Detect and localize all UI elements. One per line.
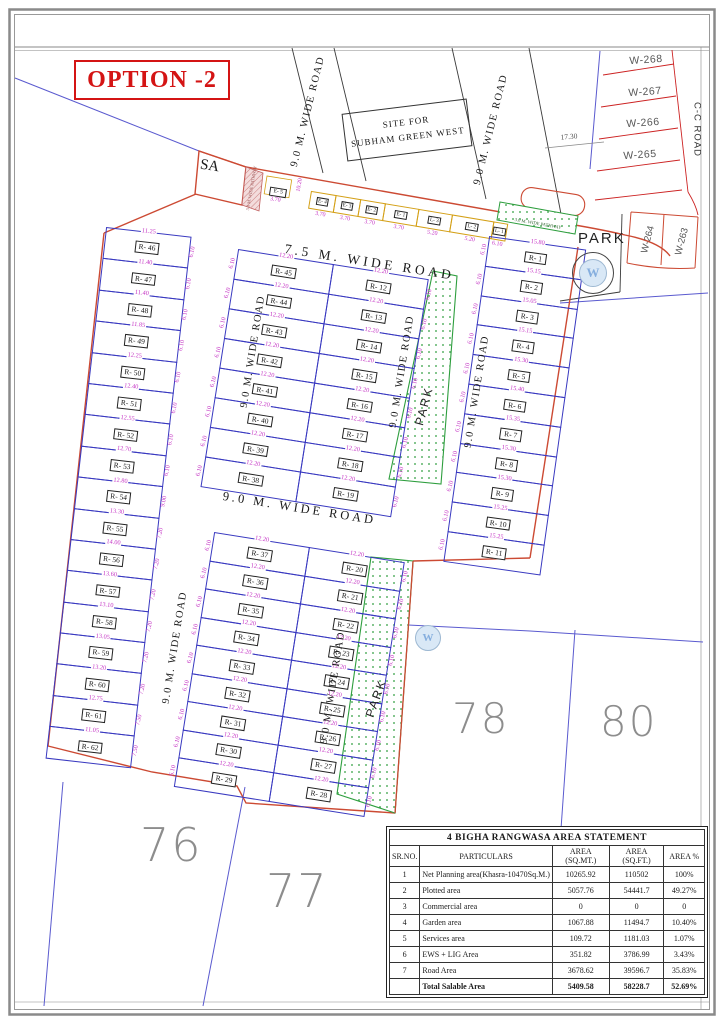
plot-width-dim: 11.05 (84, 727, 101, 735)
plot-label: R- 49 (123, 334, 149, 348)
khasra-77: 77 (266, 864, 329, 918)
plot-width-dim: 12.20 (254, 400, 271, 409)
cell-srno: 4 (390, 915, 420, 931)
plot-width-dim: 12.20 (313, 775, 330, 784)
plot-label: R- 39 (242, 442, 268, 457)
cell-particulars: EWS + LIG Area (420, 947, 553, 963)
plot-label: R- 3 (516, 310, 539, 325)
plot-width-dim: 12.20 (268, 311, 285, 320)
cell-area-pct: 35.83% (664, 963, 705, 979)
plot-label: R- 15 (351, 368, 377, 383)
plot-width-dim: 12.20 (273, 282, 290, 291)
plot-label: R- 10 (485, 516, 511, 531)
option-title: OPTION -2 (74, 60, 230, 100)
water-badge-top: W (579, 259, 607, 287)
plot-label: R- 27 (310, 758, 336, 773)
plot-width-dim: 12.20 (354, 385, 371, 394)
site-plan-sheet: OPTION -2 SITE FOR SUBHAM GREEN WEST SA … (0, 0, 724, 1024)
plot-label: R- 62 (77, 740, 103, 754)
plot-label: R- 36 (242, 575, 268, 590)
plot-width-dim: 12.20 (249, 563, 266, 572)
cell-particulars: Total Salable Area (420, 979, 553, 995)
table-body: 1 Net Planning area(Khasra-10470Sq.M.) 1… (390, 867, 705, 995)
plot-width-dim: 15.15 (525, 268, 542, 276)
plot-width-dim: 11.40 (137, 259, 154, 267)
plot-width-dim: 12.20 (245, 591, 262, 600)
plot-label: R- 59 (88, 646, 114, 660)
plot-label: R- 5 (508, 369, 531, 384)
plot-label: R- 12 (365, 279, 391, 294)
cell-srno: 6 (390, 947, 420, 963)
plot-width-dim: 15.35 (504, 415, 521, 423)
cell-srno: 7 (390, 963, 420, 979)
plot-width-dim: 12.20 (240, 619, 257, 628)
plot-width-dim: 12.20 (349, 415, 366, 424)
plot-width-dim: 15.15 (517, 327, 534, 335)
plot-width-dim: 11.25 (141, 227, 158, 235)
plot-label: R- 47 (130, 272, 156, 286)
cell-srno: 1 (390, 867, 420, 883)
plot-width-dim: 12.40 (123, 383, 140, 391)
table-row: 2 Plotted area 5057.76 54441.7 49.27% (390, 883, 705, 899)
plot-width-dim: 12.75 (87, 695, 104, 703)
sa-label: SA (199, 157, 221, 177)
cell-area-pct: 10.40% (664, 915, 705, 931)
plot-label: E- 3 (340, 201, 354, 212)
plot-width-dim: 12.20 (218, 760, 235, 769)
plot-label: R- 16 (346, 398, 372, 413)
plot-width-dim: 12.70 (116, 446, 133, 454)
plot-width-dim: 12.20 (245, 459, 262, 468)
cell-srno: 2 (390, 883, 420, 899)
plot-label: R- 11 (481, 546, 507, 561)
plot-label: R- 35 (238, 603, 264, 618)
plot-width-dim: 12.20 (340, 606, 357, 615)
table-row: 4 Garden area 1067.88 11494.7 10.40% (390, 915, 705, 931)
cell-area-sqft: 0 (609, 899, 664, 915)
plot-label: R- 37 (247, 546, 273, 561)
plot-label: R- 52 (113, 428, 139, 442)
col-area-pct: AREA % (664, 846, 705, 867)
plot-label: R- 28 (306, 787, 332, 802)
cell-area-pct: 100% (664, 867, 705, 883)
plot-label: R- 45 (270, 264, 296, 279)
col-area-sqft: AREA (SQ.FT.) (609, 846, 664, 867)
plot-label: R- 18 (337, 457, 363, 472)
plot-label: R- 40 (247, 412, 273, 427)
plot-label: R- 46 (134, 241, 160, 255)
cc-road-label: C-C ROAD (692, 90, 703, 170)
table-header-row: SR.NO. PARTICULARS AREA (SQ.MT.) AREA (S… (390, 846, 705, 867)
plot-width-dim: 12.20 (344, 578, 361, 587)
cell-srno (390, 979, 420, 995)
plot-label: R- 56 (98, 553, 124, 567)
plot-width-dim: 12.20 (254, 535, 271, 544)
khasra-76: 76 (140, 818, 203, 872)
plot-width-dim: 13.30 (109, 508, 126, 516)
plot-label: R- 55 (102, 521, 128, 535)
cell-area-sqft: 110502 (609, 867, 664, 883)
cell-area-pct: 1.07% (664, 931, 705, 947)
plot-width-dim: 14.00 (105, 539, 122, 547)
plot-width-dim: 15.05 (521, 297, 538, 305)
cell-area-sqmt: 1067.88 (552, 915, 609, 931)
plot-width-dim: 12.20 (363, 326, 380, 335)
plot-label: E- 4 (315, 196, 329, 207)
plot-label: R- 57 (95, 584, 121, 598)
area-statement-table: 4 BIGHA RANGWASA AREA STATEMENT SR.NO. P… (386, 826, 708, 998)
table-row: 1 Net Planning area(Khasra-10470Sq.M.) 1… (390, 867, 705, 883)
option-title-text: OPTION -2 (87, 67, 217, 94)
table-row: 7 Road Area 3678.62 39596.7 35.83% (390, 963, 705, 979)
cell-area-pct: 0 (664, 899, 705, 915)
plot-width-dim: 12.20 (368, 297, 385, 306)
plot-label: R- 32 (224, 687, 250, 702)
cell-srno: 3 (390, 899, 420, 915)
plot-label: R- 38 (238, 472, 264, 487)
table-row: 3 Commercial area 0 0 0 (390, 899, 705, 915)
plot-width-dim: 15.30 (513, 356, 530, 364)
plot-label: R- 41 (252, 383, 278, 398)
cell-area-sqft: 39596.7 (609, 963, 664, 979)
cell-area-sqmt: 109.72 (552, 931, 609, 947)
cell-area-sqft: 11494.7 (609, 915, 664, 931)
plot-width-dim: 15.25 (488, 533, 505, 541)
plot-width-dim: 15.80 (529, 238, 546, 246)
plot-label: R- 2 (520, 280, 543, 295)
plot-width-dim: 12.20 (236, 647, 253, 656)
plot-width-dim: 12.20 (358, 356, 375, 365)
plot-width-dim: 12.20 (259, 370, 276, 379)
plot-label: R- 43 (261, 323, 287, 338)
plot-label: R- 6 (504, 398, 527, 413)
plot-width-dim: 12.20 (231, 676, 248, 685)
plot-label: R- 61 (81, 709, 107, 723)
plot-width-dim: 12.55 (119, 415, 136, 423)
plot-label: R- 19 (332, 487, 358, 502)
cell-particulars: Net Planning area(Khasra-10470Sq.M.) (420, 867, 553, 883)
cell-area-sqmt: 3678.62 (552, 963, 609, 979)
plot-label: R- 29 (211, 772, 237, 787)
plot-width-dim: 15.40 (509, 386, 526, 394)
plot-label: L- 1 (492, 226, 506, 237)
plot-label: R- 60 (84, 677, 110, 691)
table-row: 5 Services area 109.72 1181.03 1.07% (390, 931, 705, 947)
plot-width-dim: 12.20 (264, 341, 281, 350)
cell-particulars: Commercial area (420, 899, 553, 915)
cell-particulars: Garden area (420, 915, 553, 931)
cell-area-sqft: 1181.03 (609, 931, 664, 947)
plot-width-dim: 12.20 (317, 747, 334, 756)
plot-label: R- 21 (337, 590, 363, 605)
plot-width-dim: 12.20 (222, 732, 239, 741)
plot-width-dim: 13.20 (91, 664, 108, 672)
plot-width-dim: 15.30 (496, 474, 513, 482)
plot-label: R- 30 (215, 743, 241, 758)
khasra-80: 80 (600, 697, 657, 746)
plot-label: R- 51 (116, 397, 142, 411)
plot-label: R- 34 (233, 631, 259, 646)
plot-label: R- 17 (342, 427, 368, 442)
plot-label: R- 48 (127, 303, 153, 317)
plot-width-dim: 12.20 (227, 704, 244, 713)
water-point-circle-top: W (572, 252, 614, 294)
plot-label: R- 7 (499, 428, 522, 443)
plot-label: R- 33 (229, 659, 255, 674)
col-particulars: PARTICULARS (420, 846, 553, 867)
cell-area-sqft: 3786.99 (609, 947, 664, 963)
plot-width-dim: 13.60 (101, 571, 118, 579)
plot-width-dim: 13.05 (94, 633, 111, 641)
plot-width-dim: 13.10 (98, 602, 115, 610)
plot-width-dim: 15.30 (500, 445, 517, 453)
cell-particulars: Road Area (420, 963, 553, 979)
cell-particulars: Services area (420, 931, 553, 947)
cell-area-sqmt: 5057.76 (552, 883, 609, 899)
plot-width-dim: 12.20 (340, 474, 357, 483)
plot-label: R- 8 (495, 457, 518, 472)
plot-label: R- 54 (106, 490, 132, 504)
plot-label: R- 20 (341, 561, 367, 576)
cell-area-sqmt: 5409.58 (552, 979, 609, 995)
table-row: Total Salable Area 5409.58 58228.7 52.69… (390, 979, 705, 995)
plot-width-dim: 15.25 (492, 504, 509, 512)
plot-label: R- 53 (109, 459, 135, 473)
plot-label: R- 44 (266, 294, 292, 309)
plot-width-dim: 12.20 (249, 430, 266, 439)
cell-area-sqft: 54441.7 (609, 883, 664, 899)
plot-width-dim: 12.20 (348, 550, 365, 559)
cell-area-sqmt: 351.82 (552, 947, 609, 963)
khasra-78: 78 (452, 694, 509, 743)
plot-label: R- 13 (361, 309, 387, 324)
plot-label: R- 31 (220, 715, 246, 730)
cell-particulars: Plotted area (420, 883, 553, 899)
plot-label: R- 1 (524, 251, 547, 266)
cell-srno: 5 (390, 931, 420, 947)
plot-label: L- 3 (427, 215, 441, 226)
col-area-sqmt: AREA (SQ.MT.) (552, 846, 609, 867)
cell-area-pct: 52.69% (664, 979, 705, 995)
plot-label: E- 1 (394, 210, 408, 221)
plot-label: R- 42 (256, 353, 282, 368)
plot-label: L- 2 (465, 221, 479, 232)
plot-label: R- 50 (120, 365, 146, 379)
mid-lower-block: 12.20 R- 37 6.10 12.20 R- 36 6.10 12.20 … (174, 533, 405, 817)
cell-area-sqmt: 10265.92 (552, 867, 609, 883)
plot-label: R- 14 (356, 338, 382, 353)
table-title: 4 BIGHA RANGWASA AREA STATEMENT (390, 830, 705, 846)
plot-width-dim: 12.80 (112, 477, 129, 485)
water-badge-mid: W (415, 625, 441, 651)
plot-label: R- 58 (91, 615, 117, 629)
plot-width-dim: 12.25 (126, 352, 143, 360)
w-top-block-lines (595, 50, 698, 215)
plot-width-dim: 11.85 (130, 321, 147, 329)
park-label-topright: PARK (578, 230, 626, 247)
col-srno: SR.NO. (390, 846, 420, 867)
cell-area-sqmt: 0 (552, 899, 609, 915)
plot-width-dim: 12.20 (344, 445, 361, 454)
cell-area-sqft: 58228.7 (609, 979, 664, 995)
plot-width-dim: 11.40 (133, 290, 150, 298)
cell-area-pct: 3.43% (664, 947, 705, 963)
table-row: 6 EWS + LIG Area 351.82 3786.99 3.43% (390, 947, 705, 963)
plot-label: R- 4 (512, 339, 535, 354)
plot-label: E- 2 (365, 205, 379, 216)
plot-label: R- 9 (491, 487, 514, 502)
cell-area-pct: 49.27% (664, 883, 705, 899)
